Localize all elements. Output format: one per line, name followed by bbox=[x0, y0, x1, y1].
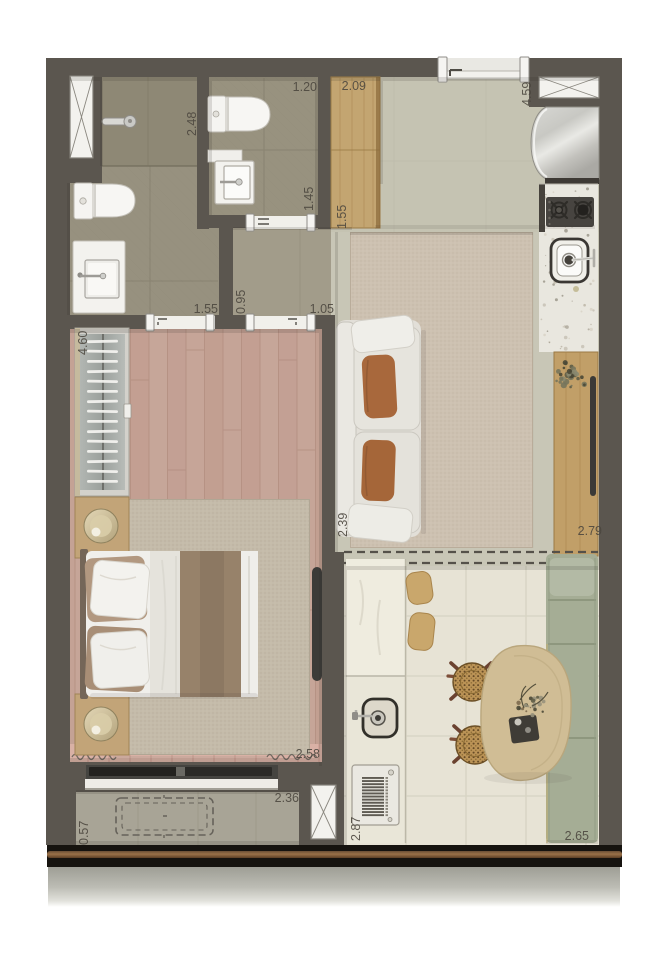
svg-text:1.20: 1.20 bbox=[293, 80, 317, 94]
svg-text:2.39: 2.39 bbox=[336, 513, 350, 537]
svg-text:2.36: 2.36 bbox=[275, 791, 299, 805]
svg-text:1.55: 1.55 bbox=[335, 205, 349, 229]
svg-text:2.65: 2.65 bbox=[565, 829, 589, 843]
svg-text:2.48: 2.48 bbox=[185, 112, 199, 136]
svg-text:1.55: 1.55 bbox=[194, 302, 218, 316]
svg-text:1.05: 1.05 bbox=[310, 302, 334, 316]
svg-text:2.87: 2.87 bbox=[349, 817, 363, 841]
svg-text:2.09: 2.09 bbox=[342, 79, 366, 93]
svg-text:2.79: 2.79 bbox=[578, 524, 602, 538]
svg-text:0.57: 0.57 bbox=[77, 821, 91, 845]
svg-text:4.59: 4.59 bbox=[520, 82, 534, 106]
svg-text:4.60: 4.60 bbox=[76, 331, 90, 355]
svg-text:2.58: 2.58 bbox=[296, 747, 320, 761]
svg-text:1.45: 1.45 bbox=[302, 187, 316, 211]
svg-text:0.95: 0.95 bbox=[234, 290, 248, 314]
